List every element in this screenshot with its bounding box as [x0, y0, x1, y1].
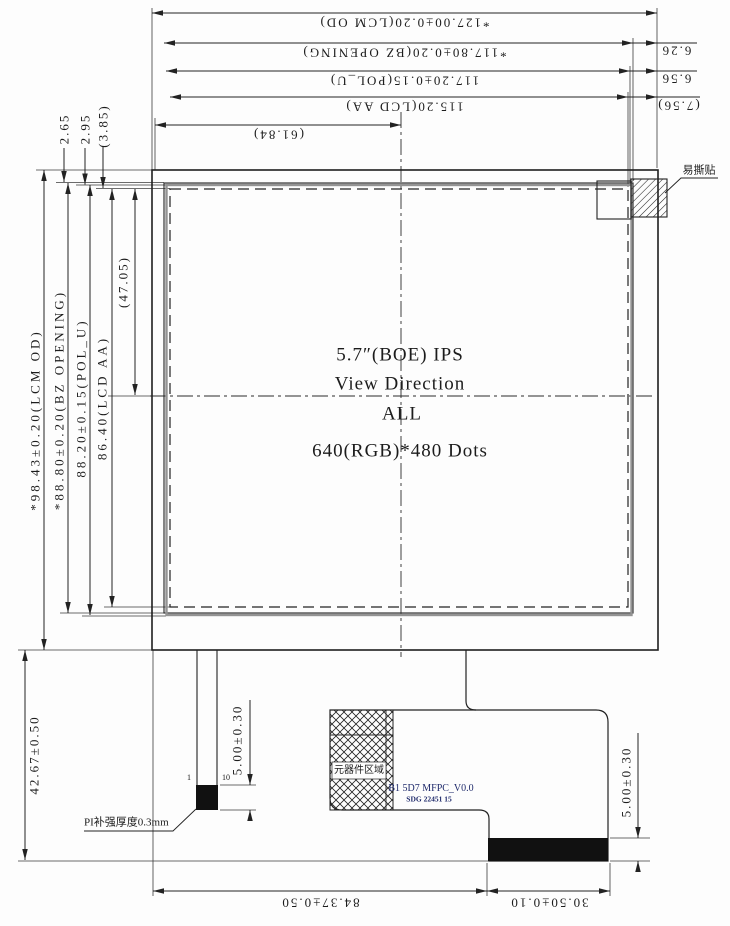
dim-bottom-tab-width: 30.50±0.10 — [509, 897, 588, 910]
dim-bottom-fpc-width: 84.37±0.50 — [280, 897, 359, 910]
dim-left-bz-opening: *88.80±0.20(BZ OPENING) — [53, 290, 66, 510]
tear-sticker-label: 易撕贴 — [683, 166, 716, 177]
fpc-code-sub-label: SDG 22451 15 — [406, 795, 451, 803]
dim-top-lcd-aa: 115.20(LCD AA) — [344, 101, 463, 114]
dim-top-lcm-od: *127.00±0.20(LCM OD) — [319, 17, 490, 30]
component-area-label: 元器件区域 — [334, 766, 384, 776]
dim-topleft-aa-offset: (3.85) — [97, 104, 110, 147]
panel-resolution: 640(RGB)*480 Dots — [312, 442, 488, 461]
dim-top-pol-u: 117.20±0.15(POL_U) — [329, 75, 479, 88]
fpc-stiffener-bar — [488, 838, 608, 861]
fpc-tail-strip — [197, 650, 217, 785]
dim-topleft-bz-offset: 2.65 — [58, 114, 71, 145]
tear-sticker-outline — [597, 181, 631, 219]
tear-sticker-hatch — [631, 179, 667, 217]
panel-view-direction: View Direction — [335, 375, 466, 394]
lcd-module-dimension-drawing: *127.00±0.20(LCM OD) *117.80±0.20(BZ OPE… — [0, 0, 730, 926]
dim-fpc-pad-height: 5.00±0.30 — [620, 747, 633, 818]
dim-pi-pad-height: 5.00±0.30 — [231, 705, 244, 776]
fpc-code-label: B1 5D7 MFPC_V0.0 — [388, 784, 473, 794]
dim-right-bz-offset: 6.26 — [661, 45, 692, 58]
dim-left-lcm-od: *98.43±0.20(LCM OD) — [29, 329, 42, 511]
pi-stiffener-pad — [196, 785, 218, 810]
tear-sticker-leader-line — [665, 178, 718, 193]
dim-aa-half-height: (47.05) — [117, 256, 130, 308]
dim-left-lcd-aa: 86.40(LCD AA) — [96, 336, 109, 460]
dim-right-aa-offset: (7.56) — [656, 100, 699, 113]
pi-stiffener-note: PI补强厚度0.3mm — [84, 818, 169, 829]
bezel-opening-outline — [164, 183, 633, 613]
panel-size-text: 5.7″(BOE) IPS — [336, 346, 464, 365]
fpc-connector — [466, 650, 476, 710]
dim-top-half-width: (61.84) — [252, 129, 304, 142]
dim-right-pol-offset: 6.56 — [661, 73, 692, 86]
active-area-outline — [170, 189, 628, 607]
component-area-hatch — [330, 710, 393, 810]
dim-topleft-pol-offset: 2.95 — [79, 114, 92, 145]
dim-top-bz-opening: *117.80±0.20(BZ OPENING) — [301, 47, 506, 60]
panel-direction-value: ALL — [382, 405, 422, 424]
dim-module-height: 42.67±0.50 — [28, 715, 41, 794]
dim-left-pol-u: 88.20±0.15(POL_U) — [75, 318, 88, 477]
polarizer-outline — [167, 185, 632, 615]
pin-first-label: 1 — [187, 774, 191, 782]
